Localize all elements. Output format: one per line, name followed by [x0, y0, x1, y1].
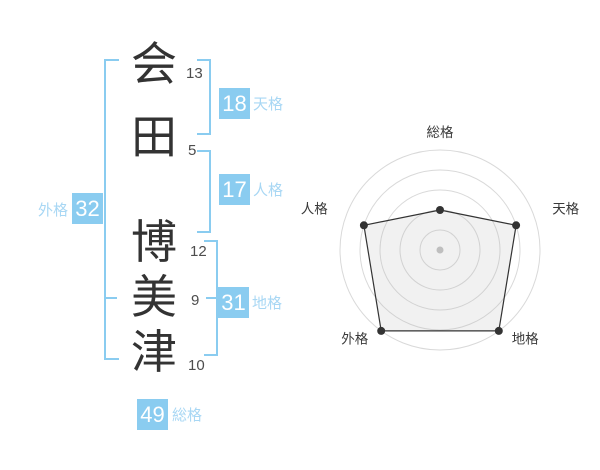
gaikaku-bracket-tick	[106, 297, 117, 299]
radar-chart: 総格天格地格外格人格	[300, 110, 580, 360]
name-character: 田	[123, 114, 185, 160]
stroke-count: 9	[191, 293, 199, 308]
jinkaku-score-badge: 17	[219, 174, 250, 205]
name-fortune-panel: 会 田 博 美 津 13 5 12 9 10 18 天格 17 人格 31 地格…	[0, 0, 600, 470]
radar-axis-label: 地格	[512, 332, 539, 347]
radar-axis-label: 外格	[341, 332, 369, 347]
tenkaku-score-label: 天格	[253, 97, 283, 112]
tenkaku-bracket	[197, 59, 211, 135]
radar-data-point	[512, 221, 520, 229]
chikaku-score-label: 地格	[252, 296, 282, 311]
stroke-count: 5	[188, 143, 196, 158]
gaikaku-score-label: 外格	[38, 203, 72, 218]
radar-data-point	[436, 206, 444, 214]
name-character: 博	[123, 219, 185, 265]
chikaku-score-badge: 31	[218, 287, 249, 318]
stroke-count: 10	[188, 358, 205, 373]
radar-data-polygon	[364, 210, 516, 331]
tenkaku-score-badge: 18	[219, 88, 250, 119]
radar-axis-label: 人格	[301, 202, 328, 217]
radar-data-point	[377, 327, 385, 335]
chikaku-bracket-tick	[206, 297, 216, 299]
gaikaku-score-badge: 32	[72, 193, 103, 224]
name-character: 津	[123, 329, 185, 375]
jinkaku-score-label: 人格	[253, 183, 283, 198]
radar-axis-label: 天格	[552, 202, 579, 217]
radar-axis-label: 総格	[427, 125, 454, 140]
gaikaku-bracket	[104, 59, 119, 360]
name-character: 会	[123, 41, 185, 87]
jinkaku-bracket	[197, 150, 211, 233]
soukaku-score-label: 総格	[172, 408, 202, 423]
name-character: 美	[123, 274, 185, 320]
radar-data-point	[360, 221, 368, 229]
soukaku-score-badge: 49	[137, 399, 168, 430]
radar-data-point	[495, 327, 503, 335]
